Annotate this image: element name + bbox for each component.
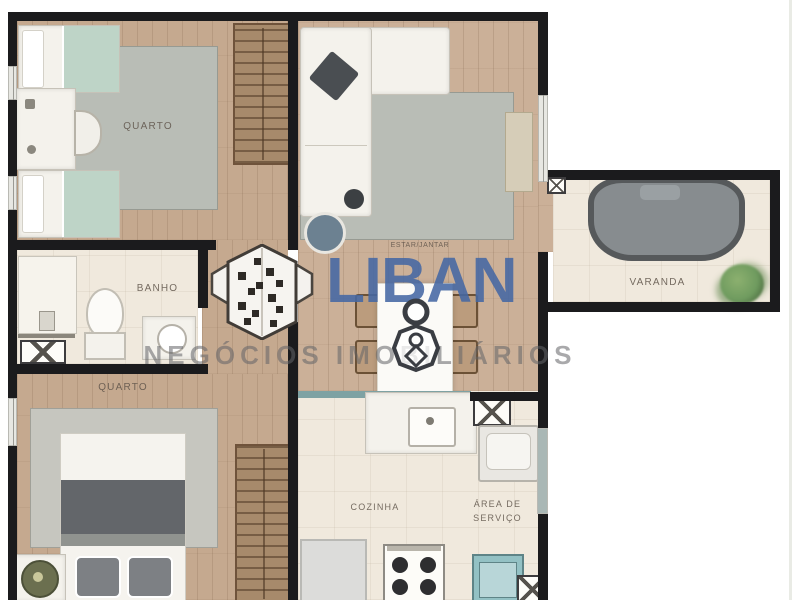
potted-plant [720,264,764,304]
desk-item [27,145,36,154]
liban-emblem-icon [390,298,442,378]
toilet-bowl [86,288,124,338]
wall-left-1 [8,12,17,66]
burner [392,557,408,573]
sink [408,407,456,447]
burner [420,557,436,573]
image-edge-line [789,0,792,600]
twin-bed-top [18,25,120,93]
kitchen-peninsula [365,392,477,454]
cushion-line [305,145,367,146]
bed-blanket [61,480,185,534]
bedroom1-label: QUARTO [100,121,196,132]
shaft-box [473,398,511,426]
bed-pillow [127,556,173,598]
fan-hub [33,572,43,582]
washer-drum [479,562,517,598]
liban-logo-icon [210,244,314,340]
double-bed [60,433,186,600]
twin-bed-bottom [18,170,120,238]
desk [16,88,76,170]
fridge [300,539,367,600]
side-table [344,189,364,209]
bed-blanket-fold [61,534,185,546]
floor-plan: QUARTO BANHO QUARTO ESTAR/JANTAR CIRC. C… [0,0,800,600]
wall-top [8,12,548,21]
wall-left-2 [8,100,17,176]
shower-partition [18,334,75,338]
burner [420,579,436,595]
bathroom-label: BANHO [120,283,195,294]
window-living [538,95,548,182]
floor-fan-base [12,554,66,600]
window-bedroom2 [8,398,17,446]
wall-bedroom1-living [288,12,298,250]
mint-blanket [62,171,119,237]
pillow [22,175,44,233]
shower-stall [18,256,77,334]
balcony-daybed [588,177,745,261]
shaft-box [547,177,566,194]
wall-right-3 [538,514,548,600]
pillow [22,30,44,88]
daybed-pillow [640,185,680,200]
laundry-tank [478,425,539,482]
bedroom2-label: QUARTO [75,382,171,393]
bed-pillow [75,556,121,598]
wall-balcony-top [545,170,780,180]
wall-bedroom1-bottom [8,240,216,250]
bedroom1-wardrobe [233,23,291,165]
shower-fixture [39,311,55,331]
balcony-label: VARANDA [610,277,705,288]
shaft-box [20,340,66,364]
stove [383,544,445,600]
stove-knobs [387,546,441,551]
service-label-line2: SERVIÇO [455,513,540,523]
tv-sideboard [505,112,533,192]
tank-basin [486,433,531,470]
watermark-tagline: NEGÓCIOS IMOBILIÁRIOS [140,340,580,371]
service-label-line1: ÁREA DE [455,499,540,509]
faucet [426,417,434,425]
bedroom2-wardrobe [235,444,291,600]
mint-blanket [62,26,119,92]
desk-item [25,99,35,109]
kitchen-label: COZINHA [330,502,420,512]
wall-service-top [470,392,538,401]
wall-left-4 [8,446,17,600]
wall-balcony-right [770,170,780,312]
burner [392,579,408,595]
window-bedroom1-a [8,66,17,100]
wall-balcony-bottom [545,302,780,312]
wall-right-1 [538,12,548,95]
window-bedroom1-b [8,176,17,210]
toilet-tank [84,332,126,360]
wall-bathroom-right [198,250,208,308]
